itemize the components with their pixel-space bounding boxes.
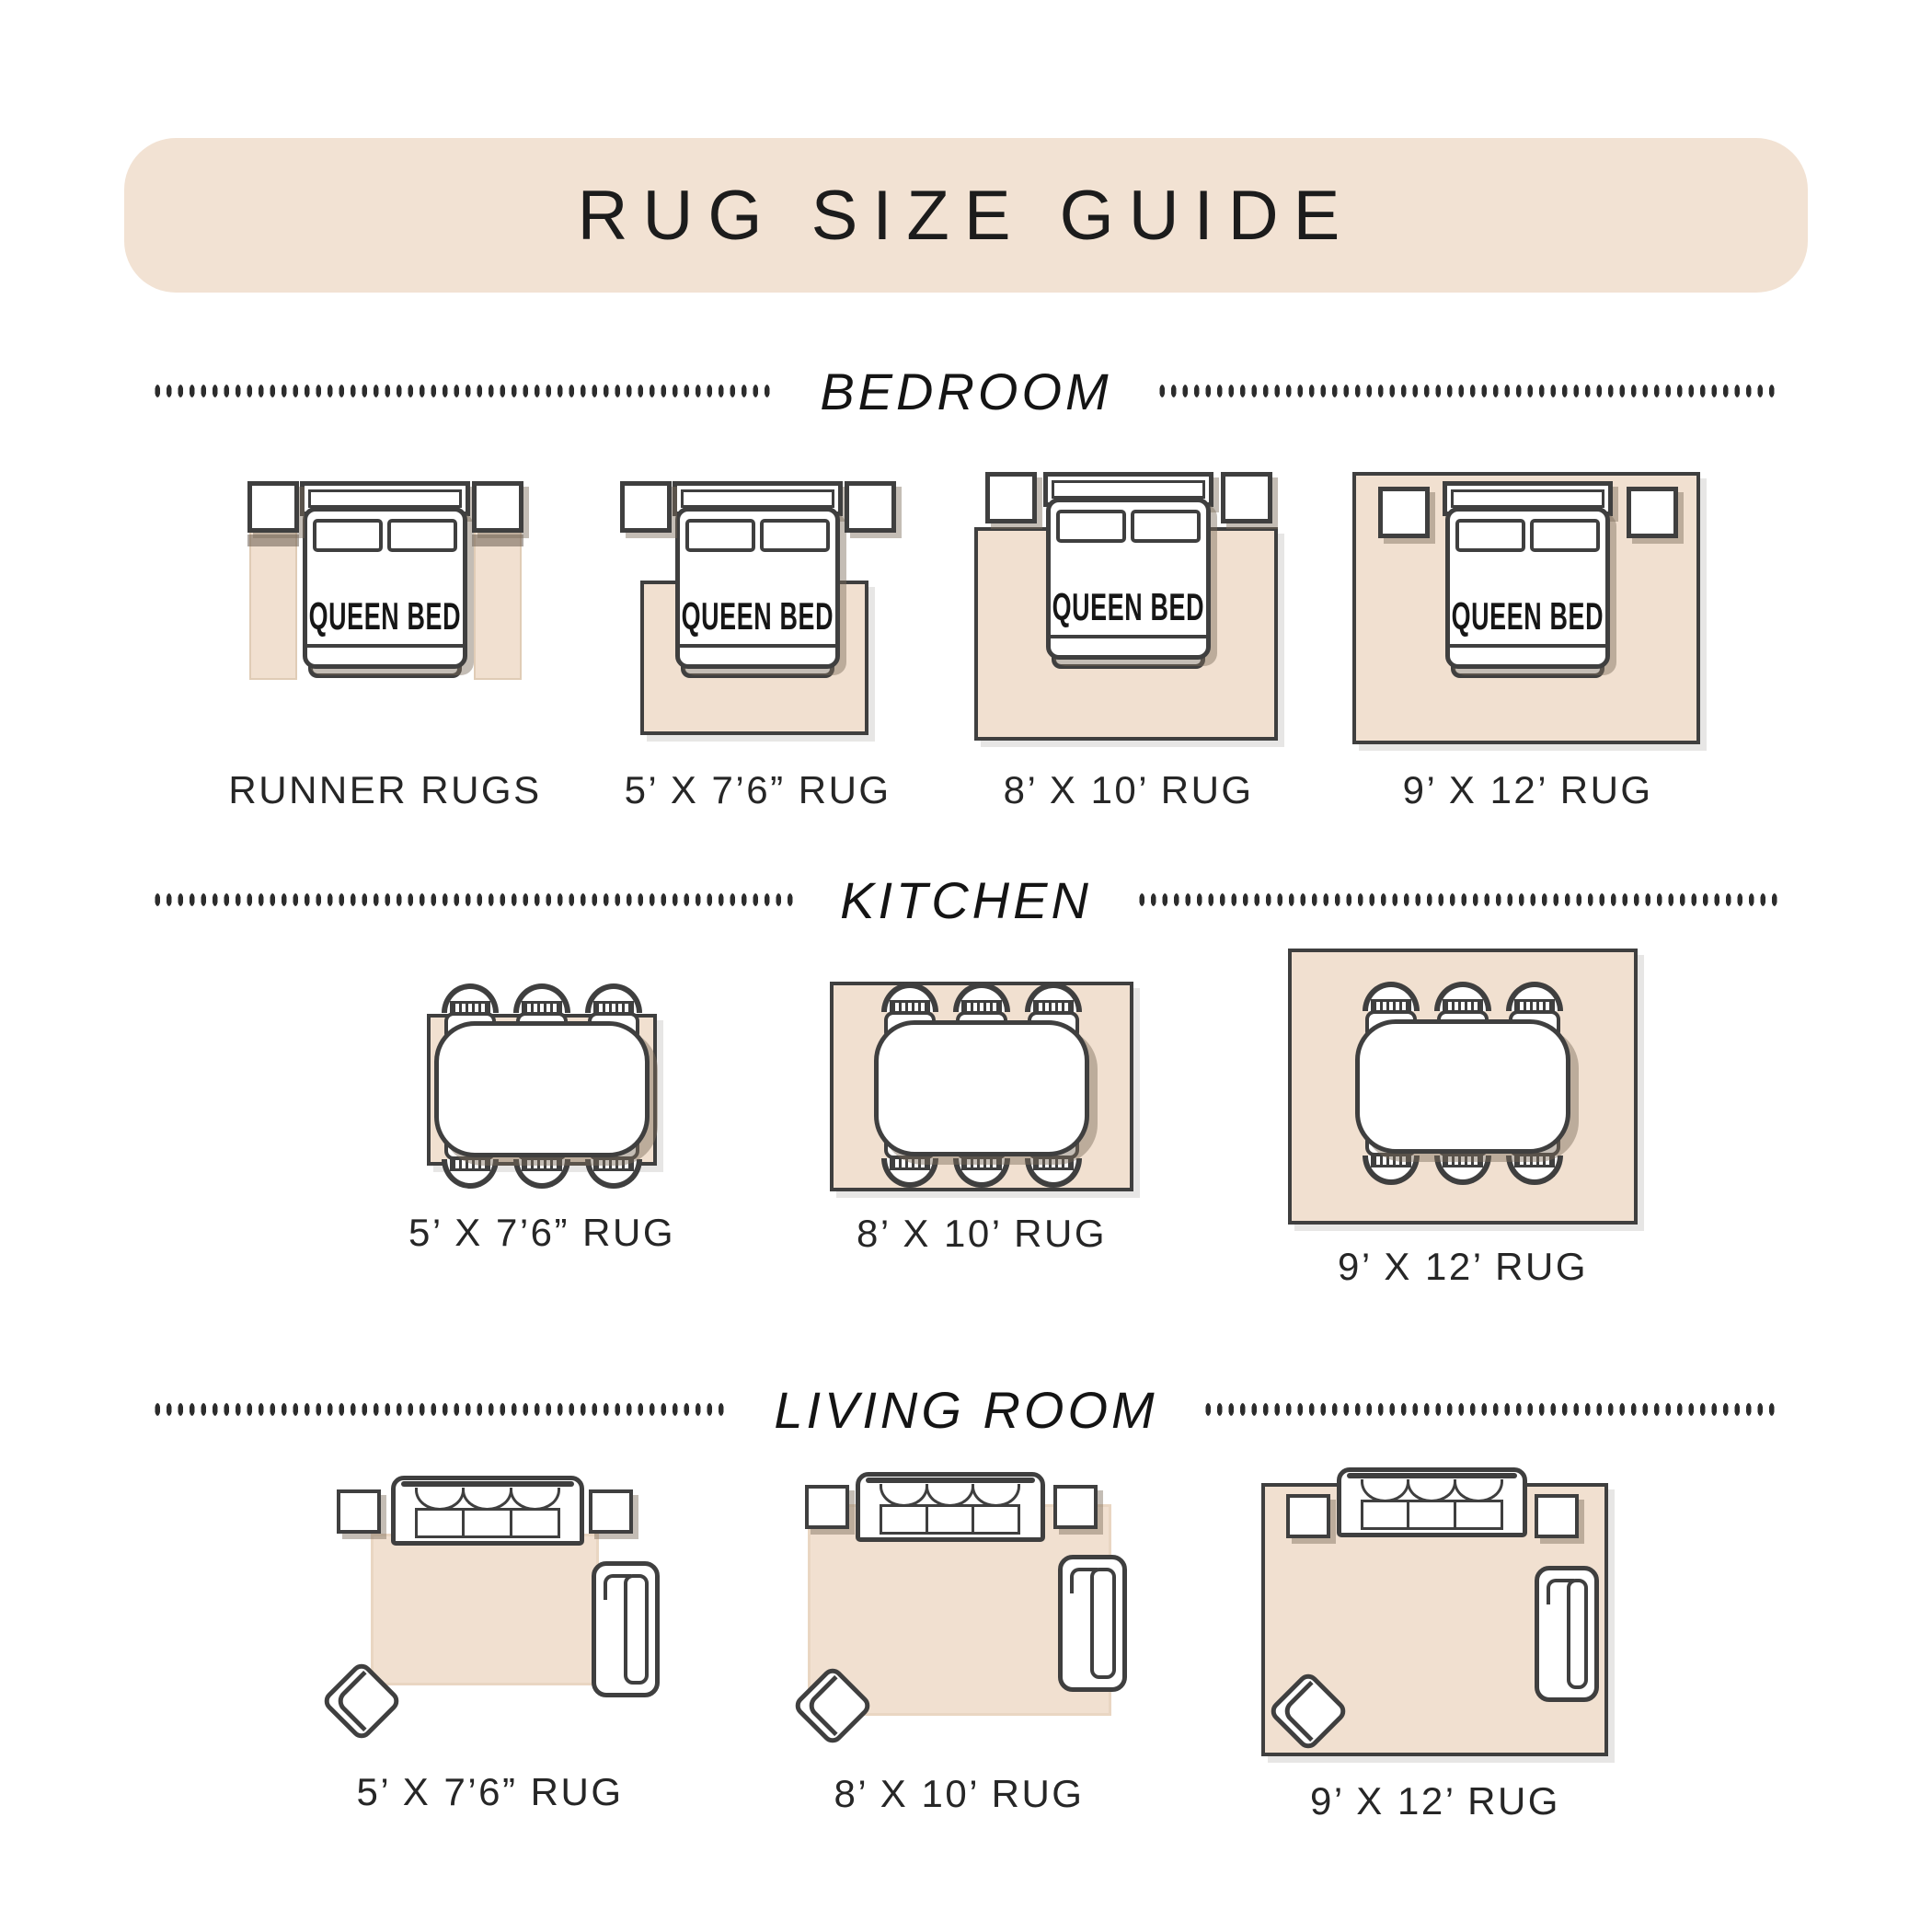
nightstand-left (985, 472, 1037, 523)
mattress: QUEEN BED (675, 507, 840, 669)
sofa-seat-cushions (880, 1504, 1021, 1535)
bedroom-runner-diagram: QUEEN BED (238, 472, 533, 748)
rug-size-label: 9’ X 12’ RUG (1338, 1245, 1588, 1289)
sofa (856, 1472, 1045, 1542)
dining-table (1355, 1019, 1570, 1154)
bedroom-5x76-diagram: QUEEN BED (611, 472, 905, 748)
pillow-right (760, 519, 830, 552)
bed-label: QUEEN BED (1450, 594, 1605, 638)
pillow-right (387, 519, 457, 552)
nightstand-left (247, 481, 299, 533)
sofa (391, 1476, 584, 1546)
queen-bed: QUEEN BED (300, 481, 470, 678)
dotted-line-left (152, 384, 776, 398)
living-room-5x76-diagram (320, 1465, 661, 1750)
section-title-living-room: LIVING ROOM (774, 1380, 1157, 1440)
sofa (1337, 1467, 1527, 1537)
kitchen-figure-5x76: 5’ X 7’6” RUG (408, 983, 675, 1255)
pillow-left (1455, 519, 1525, 552)
bedroom-row: QUEEN BED RUNNER RUGS QUEEN BED (0, 472, 1932, 812)
pillow-left (313, 519, 383, 552)
nightstand-right (1221, 472, 1272, 523)
accent-chair (592, 1561, 660, 1697)
dotted-line-right (1202, 1402, 1780, 1417)
section-title-bedroom: BEDROOM (820, 362, 1111, 421)
sofa-seat-cushions (415, 1508, 560, 1538)
pillow-left (685, 519, 755, 552)
bed-label: QUEEN BED (1051, 585, 1206, 629)
queen-bed: QUEEN BED (1043, 472, 1213, 669)
nightstand-right (472, 481, 523, 533)
kitchen-9x12-diagram (1288, 949, 1638, 1225)
bedroom-figure-5x76: QUEEN BED 5’ X 7’6” RUG (611, 472, 905, 812)
dotted-line-right (1156, 384, 1780, 398)
end-table-left (1286, 1494, 1330, 1538)
living-room-8x10-diagram (789, 1465, 1130, 1752)
dotted-line-left (152, 892, 796, 907)
living-room-9x12-diagram (1259, 1465, 1613, 1759)
bed-label: QUEEN BED (307, 594, 463, 638)
accent-chair (1535, 1566, 1599, 1702)
rug-size-label: 9’ X 12’ RUG (1403, 768, 1653, 812)
pillow-right (1131, 510, 1201, 543)
kitchen-figure-9x12: 9’ X 12’ RUG (1288, 949, 1638, 1289)
dining-table (434, 1021, 650, 1157)
bedroom-figure-runner: QUEEN BED RUNNER RUGS (228, 472, 541, 812)
sofa-seat-cushions (1361, 1500, 1503, 1530)
living-room-figure-9x12: 9’ X 12’ RUG (1259, 1465, 1613, 1823)
mattress: QUEEN BED (303, 507, 467, 669)
runner-rug-right (474, 525, 522, 680)
end-table-left (805, 1485, 849, 1529)
end-table-right (1053, 1485, 1098, 1529)
rug-size-label: RUNNER RUGS (228, 768, 541, 812)
mattress: QUEEN BED (1046, 498, 1211, 660)
page-title: RUG SIZE GUIDE (578, 176, 1355, 256)
living-room-section-divider: LIVING ROOM (152, 1380, 1780, 1439)
end-table-right (1535, 1494, 1579, 1538)
living-room-figure-5x76: 5’ X 7’6” RUG (320, 1465, 661, 1814)
kitchen-5x76-diagram (427, 983, 657, 1190)
nightstand-right (1627, 487, 1678, 538)
dotted-line-right (1136, 892, 1780, 907)
living-room-figure-8x10: 8’ X 10’ RUG (789, 1465, 1130, 1816)
area-rug (371, 1534, 599, 1685)
runner-rug-left (249, 525, 297, 680)
mattress: QUEEN BED (1445, 507, 1610, 669)
kitchen-8x10-diagram (830, 982, 1133, 1191)
bedroom-9x12-diagram: QUEEN BED (1352, 472, 1704, 748)
rug-size-guide-page: RUG SIZE GUIDE BEDROOM QUEEN BED (0, 0, 1932, 1932)
end-table-right (589, 1489, 633, 1534)
pillow-right (1530, 519, 1600, 552)
bed-label: QUEEN BED (680, 594, 835, 638)
rug-size-label: 8’ X 10’ RUG (857, 1212, 1107, 1256)
dotted-line-left (152, 1402, 730, 1417)
kitchen-section-divider: KITCHEN (152, 870, 1780, 929)
rug-size-label: 5’ X 7’6” RUG (356, 1770, 623, 1814)
bedroom-figure-9x12: QUEEN BED 9’ X 12’ RUG (1352, 472, 1704, 812)
rug-size-label: 5’ X 7’6” RUG (408, 1211, 675, 1255)
pillow-left (1056, 510, 1126, 543)
section-title-kitchen: KITCHEN (840, 870, 1092, 930)
rug-size-label: 8’ X 10’ RUG (1004, 768, 1254, 812)
kitchen-figure-8x10: 8’ X 10’ RUG (830, 982, 1133, 1256)
bedroom-figure-8x10: QUEEN BED 8’ X 10’ RUG (974, 472, 1283, 812)
end-table-left (337, 1489, 381, 1534)
rug-size-label: 5’ X 7’6” RUG (625, 768, 891, 812)
bedroom-section-divider: BEDROOM (152, 362, 1780, 420)
queen-bed: QUEEN BED (673, 481, 843, 678)
accent-chair (1058, 1555, 1127, 1692)
bedroom-8x10-diagram: QUEEN BED (974, 472, 1283, 748)
dining-table (874, 1020, 1089, 1156)
kitchen-row: 5’ X 7’6” RUG 8’ X 10’ RUG (57, 949, 1932, 1289)
living-room-row: 5’ X 7’6” RUG 8’ X 10’ RUG (0, 1465, 1932, 1823)
queen-bed: QUEEN BED (1443, 481, 1613, 678)
nightstand-right (845, 481, 896, 533)
nightstand-left (620, 481, 672, 533)
title-banner: RUG SIZE GUIDE (124, 138, 1808, 293)
rug-size-label: 9’ X 12’ RUG (1310, 1779, 1560, 1823)
nightstand-left (1378, 487, 1430, 538)
rug-size-label: 8’ X 10’ RUG (834, 1772, 1085, 1816)
